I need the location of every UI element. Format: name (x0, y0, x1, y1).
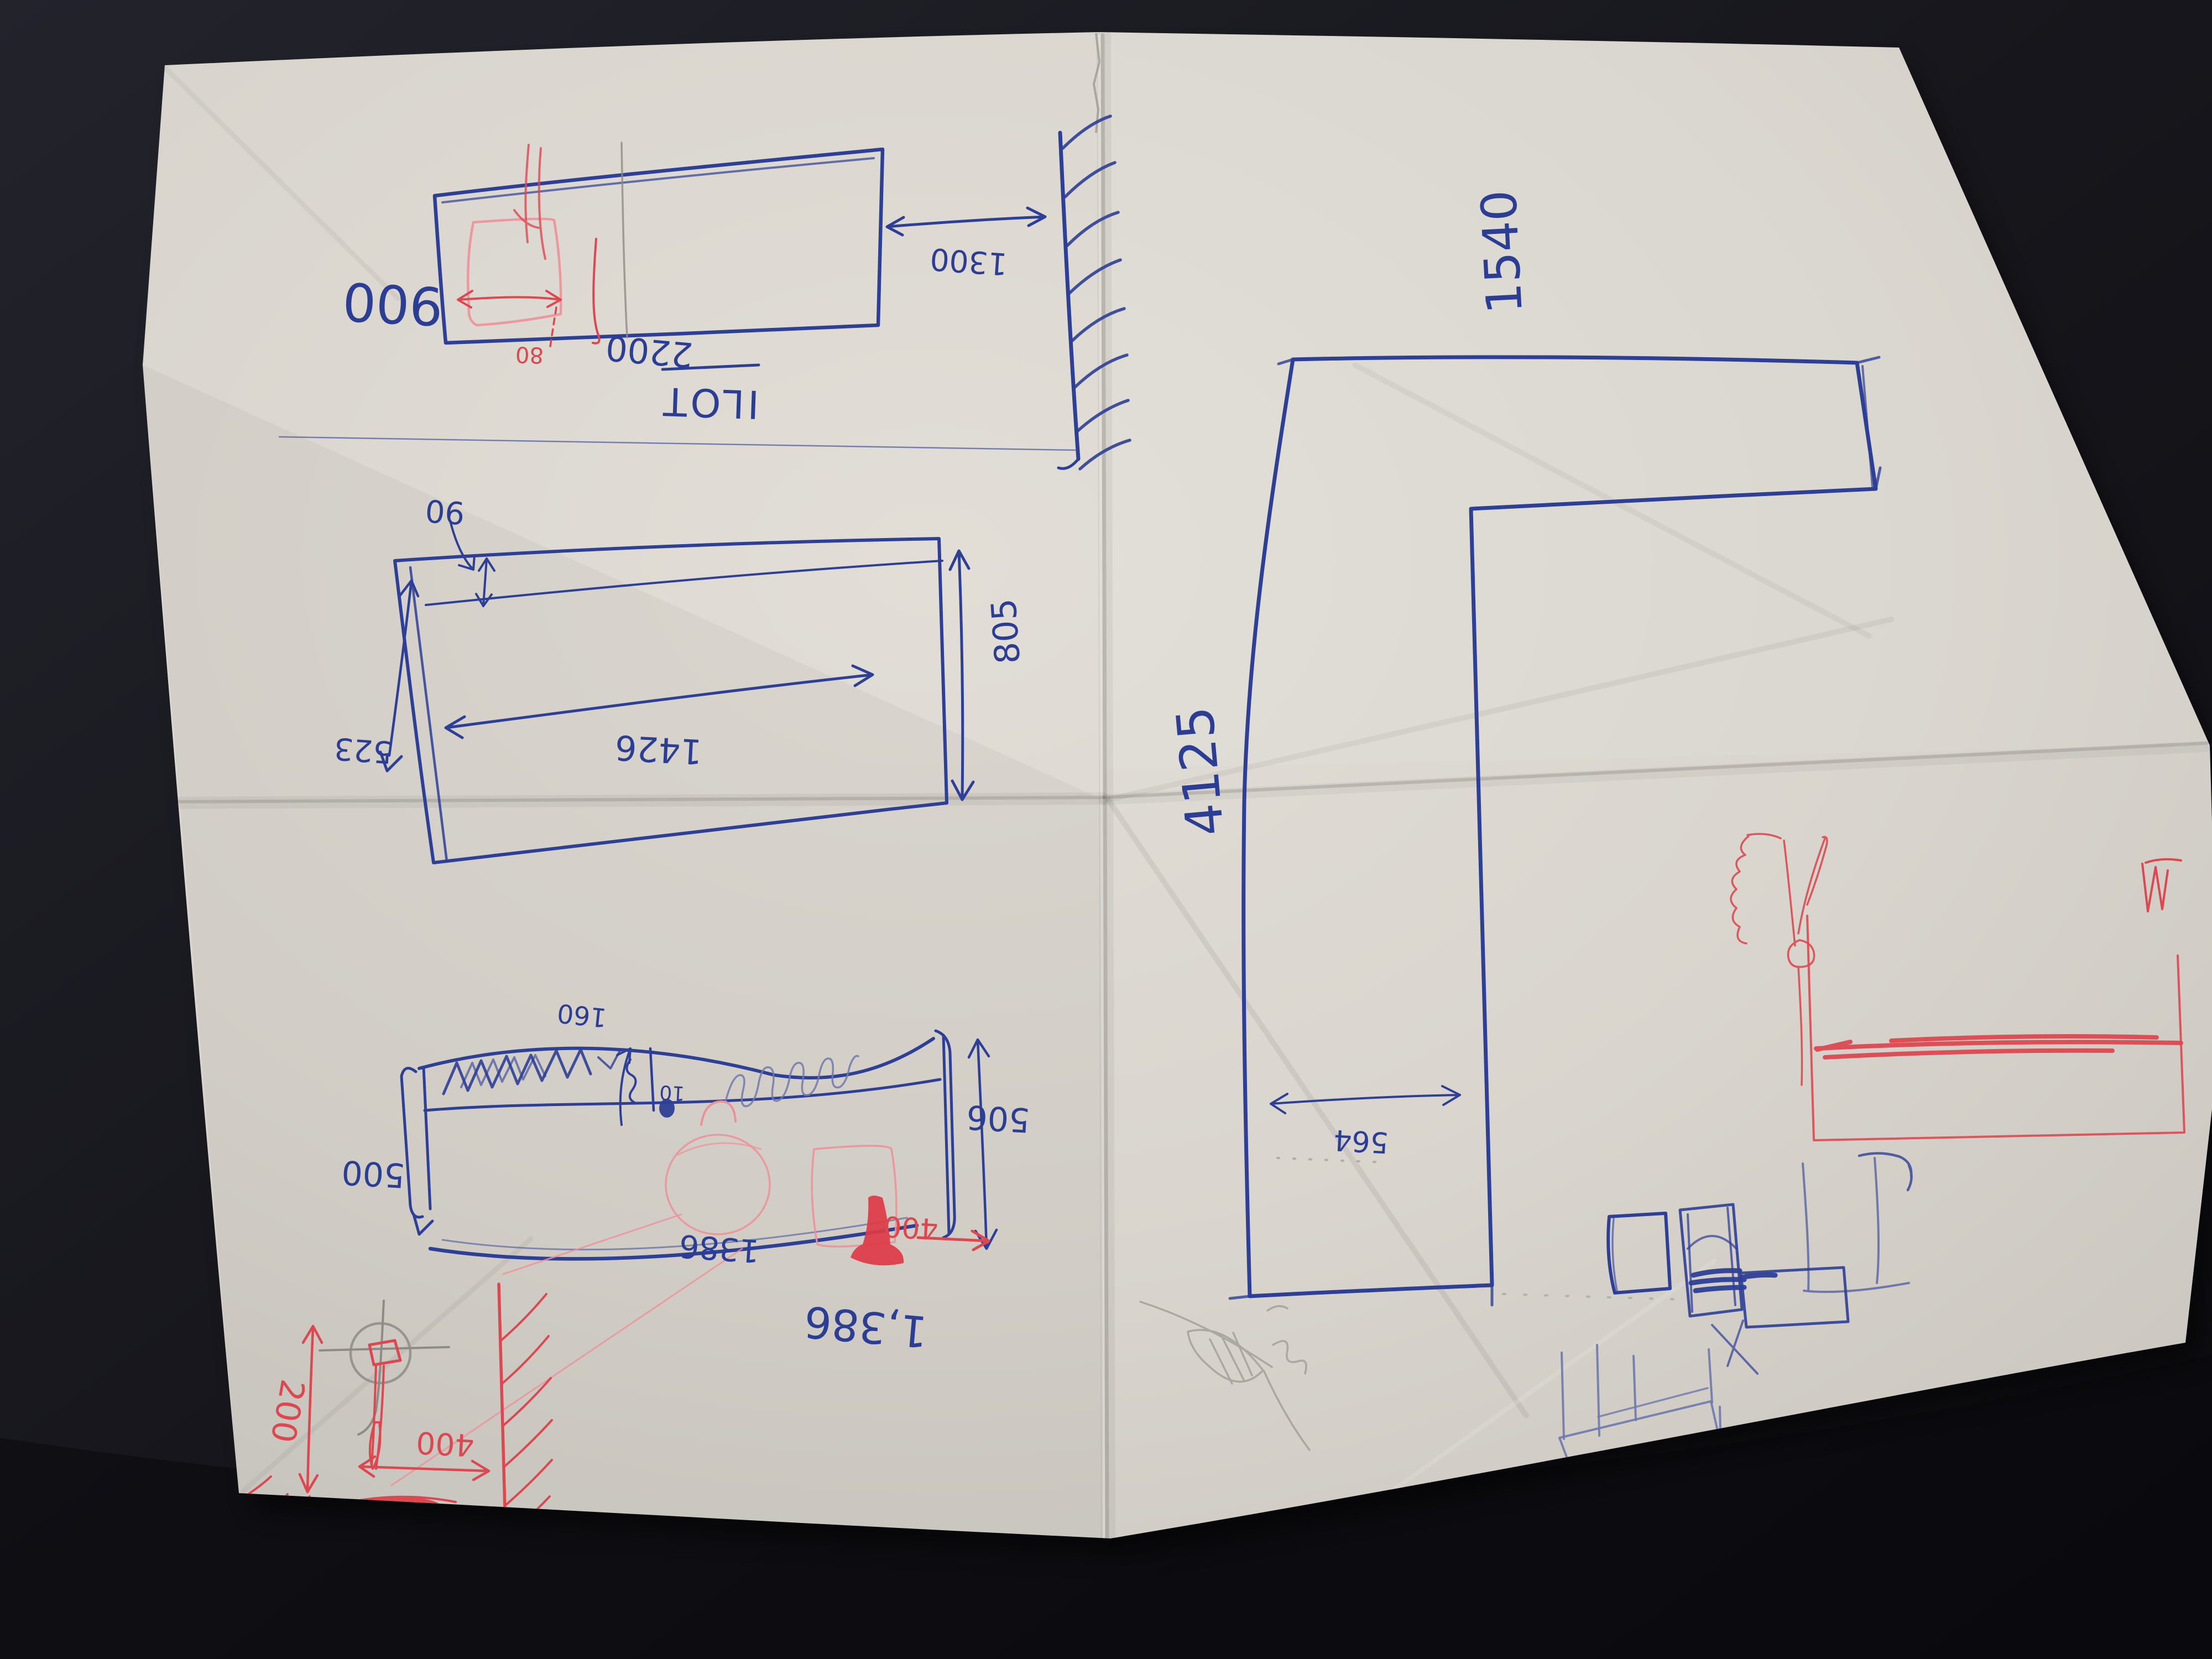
ilot-title: ILOT (659, 378, 760, 427)
right-height-label-506: 506 (966, 1097, 1031, 1139)
side-label-523: 523 (333, 731, 393, 770)
small-label-10: 10 (659, 1081, 685, 1104)
photo-of-hand-drawn-sketch: 900 2200 ILOT 1300 80 90 1426 805 523 (0, 0, 2212, 1659)
length-label-1386: 1386 (678, 1227, 760, 1269)
depth-label-900: 900 (341, 270, 445, 336)
edge-label-90: 90 (424, 492, 466, 531)
red-offset-label-400: 400 (883, 1209, 939, 1245)
wall-distance-label-1300: 1300 (929, 241, 1009, 282)
wall-offset-label-400: 400 (415, 1425, 475, 1463)
top-run-label-1540: 1540 (1470, 189, 1533, 315)
upstand-label-160: 160 (556, 997, 608, 1032)
long-run-label-4125: 4125 (1165, 704, 1235, 838)
arm-width-label-564: 564 (1333, 1123, 1389, 1159)
depth-label-805: 805 (983, 597, 1028, 665)
left-height-label-500: 500 (341, 1152, 406, 1194)
red-inset-label-80: 80 (515, 341, 544, 368)
inner-length-label-1426: 1426 (614, 727, 703, 772)
length-label-2200: 2200 (604, 327, 695, 375)
